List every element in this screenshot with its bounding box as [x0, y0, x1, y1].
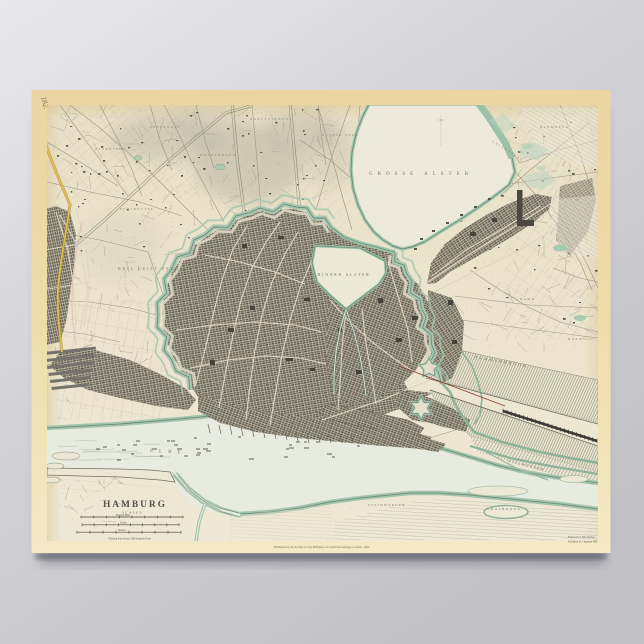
svg-text:BINNEN ALSTER: BINNEN ALSTER — [318, 273, 371, 277]
svg-text:Published by Chapman Hall: Published by Chapman Hall — [568, 541, 597, 544]
svg-text:GROSSE ALSTER: GROSSE ALSTER — [369, 172, 473, 177]
svg-text:EIMSBUTTEL: EIMSBUTTEL — [120, 207, 155, 211]
svg-text:STEINWERDER: STEINWERDER — [368, 503, 406, 507]
svg-text:ALSTER UFER: ALSTER UFER — [322, 133, 359, 137]
svg-text:BARMBECK: BARMBECK — [540, 125, 570, 129]
svg-text:HARVESTEHUDE: HARVESTEHUDE — [250, 117, 293, 121]
svg-text:Metres: Metres — [118, 529, 125, 532]
svg-text:Toises: Toises — [120, 522, 127, 525]
svg-text:HAMBURG: HAMBURG — [103, 500, 167, 510]
svg-text:GRASBROOK: GRASBROOK — [487, 507, 521, 511]
svg-text:HAMM: HAMM — [520, 297, 536, 301]
svg-text:HORN: HORN — [568, 337, 583, 341]
svg-text:HEIL GEIST FELD: HEIL GEIST FELD — [118, 267, 180, 271]
svg-text:ROTHENBAUM: ROTHENBAUM — [200, 153, 237, 157]
svg-text:OTTENSEN: OTTENSEN — [95, 147, 123, 151]
svg-text:English Mile: English Mile — [116, 514, 131, 517]
svg-text:EPPENDORF: EPPENDORF — [150, 125, 182, 129]
svg-text:Walking Pace about 2500 Englis: Walking Pace about 2500 English Yards — [108, 538, 151, 541]
svg-text:Engraved by B.R. Davies: Engraved by B.R. Davies — [568, 536, 594, 539]
